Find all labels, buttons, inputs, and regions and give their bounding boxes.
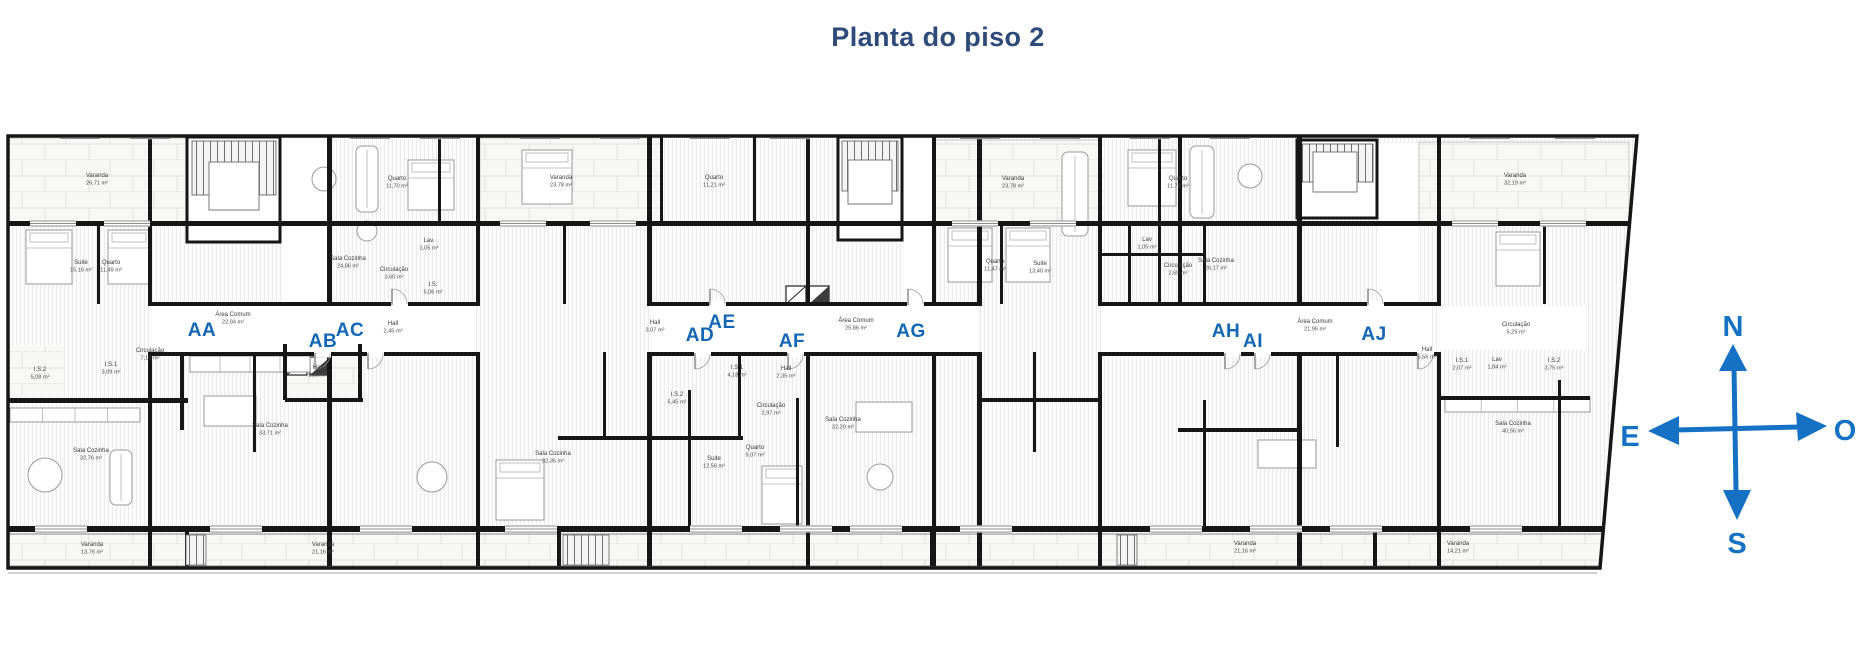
door-gap <box>907 301 924 308</box>
room-label-area: 2,69 m² <box>1169 271 1188 277</box>
room-label-area: 21,16 m² <box>1234 549 1256 555</box>
room-label-name: Área Comum <box>838 317 873 324</box>
wall-segment <box>180 352 184 430</box>
room-label-area: 21,96 m² <box>1304 327 1326 333</box>
compass-south-label: S <box>1727 528 1746 560</box>
compass-ew-axis <box>1676 427 1800 430</box>
wall-segment <box>8 398 188 403</box>
bed <box>1496 232 1540 286</box>
wall-segment <box>1033 352 1036 452</box>
wall-segment <box>806 137 810 306</box>
room-label-area: 21,16 m² <box>312 550 334 556</box>
unit-label-AF[interactable]: AF <box>779 331 805 352</box>
room-label-name: Hall <box>1422 347 1432 353</box>
wall-segment <box>253 352 256 452</box>
wall-segment <box>1098 137 1102 306</box>
room-label-name: Sala Cozinha <box>330 256 366 262</box>
compass-rose: N S E O <box>1620 311 1856 560</box>
wall-segment <box>1437 137 1441 306</box>
room-label-name: Quarto <box>746 445 765 451</box>
wall-segment <box>148 352 152 566</box>
room-label-name: Varanda <box>1002 176 1025 182</box>
wall-segment <box>1437 352 1441 566</box>
room-label-area: 22,94 m² <box>222 320 244 326</box>
compass-east-arrow <box>1648 416 1679 445</box>
room-label-name: I.S.1 <box>1456 358 1469 364</box>
exterior-stair <box>186 535 206 565</box>
wall-segment <box>438 137 441 223</box>
wall-segment <box>1178 137 1182 306</box>
round-table <box>28 458 62 492</box>
door-gap <box>709 301 726 308</box>
room-label-area: 9,07 m² <box>746 453 765 459</box>
room-label-area: 3,60 m² <box>385 275 404 281</box>
room-label-area: 24,86 m² <box>337 264 359 270</box>
room-label-area: 2,45 m² <box>384 329 403 335</box>
wall-segment <box>1158 137 1161 223</box>
room-label-name: Sala Cozinha <box>1495 421 1531 427</box>
room-label-area: 23,78 m² <box>550 183 572 189</box>
door-gap <box>694 351 711 358</box>
wall-segment <box>603 352 606 440</box>
wall-segment <box>806 352 810 566</box>
room-label-area: 11,47 m² <box>984 267 1006 273</box>
room-label-name: Circulação <box>380 267 409 273</box>
room-label-name: Suite <box>707 456 721 462</box>
room-label-area: 12,56 m² <box>703 464 725 470</box>
room-label-area: 2,35 m² <box>309 373 328 379</box>
room-label-area: 5,45 m² <box>668 400 687 406</box>
room-label-name: Varanda <box>86 173 109 179</box>
building-interior <box>8 134 1637 568</box>
room-label-name: Circulação <box>1502 322 1531 328</box>
floor-plan-page: Planta do piso 2 Varanda26,71 m²Suite15,… <box>0 0 1864 661</box>
wall-segment <box>97 224 100 304</box>
exterior-stair <box>563 535 609 565</box>
room-label-area: 2,35 m² <box>777 374 796 380</box>
room-label-name: Varanda <box>312 542 335 548</box>
wall-segment <box>650 302 980 306</box>
round-table <box>312 167 336 191</box>
dining-table <box>1258 440 1316 468</box>
room-label-area: 5,56 m² <box>1418 355 1437 361</box>
room-label-name: Área Comum <box>1297 318 1332 325</box>
room-label-name: Área Comum <box>215 311 250 318</box>
room-label-area: 7,13 m² <box>141 356 160 362</box>
room-label-name: Sala Cozinha <box>825 417 861 423</box>
bed <box>496 460 544 520</box>
room-label-area: 5,29 m² <box>1507 330 1526 336</box>
compass-north-arrow <box>1719 344 1747 371</box>
room-label-area: 32,35 m² <box>542 459 564 465</box>
wall-segment <box>476 352 480 566</box>
unit-label-AC[interactable]: AC <box>336 320 364 341</box>
round-table <box>417 462 447 492</box>
room-label-area: 1,84 m² <box>1488 365 1507 371</box>
wall-segment <box>1297 352 1302 566</box>
wall-segment <box>1336 352 1339 447</box>
wall-segment <box>647 352 652 566</box>
wall-segment <box>563 224 566 304</box>
room-label-area: 1,05 m² <box>420 246 439 252</box>
room-label-area: 26,17 m² <box>1205 266 1227 272</box>
room-label-name: Suite <box>1033 261 1047 267</box>
door-gap <box>391 301 408 308</box>
wall-segment <box>150 302 478 306</box>
wall-segment <box>932 137 936 306</box>
room-label-area: 3,07 m² <box>646 328 665 334</box>
room-label-area: 13,76 m² <box>81 550 103 556</box>
room-label-name: Circulação <box>136 348 165 354</box>
corridor-area <box>1440 306 1585 350</box>
room-label-name: Lav <box>1492 357 1502 363</box>
bed <box>408 160 454 210</box>
room-label-area: 5,06 m² <box>424 290 443 296</box>
unit-label-AH[interactable]: AH <box>1212 321 1240 342</box>
room-label-name: Hall <box>650 320 660 326</box>
room-label-name: Suite <box>74 260 88 266</box>
room-label-area: 23,78 m² <box>1002 184 1024 190</box>
wall-segment <box>1203 400 1206 528</box>
room-label-name: Varanda <box>550 175 573 181</box>
unit-label-AB[interactable]: AB <box>309 331 337 352</box>
room-label-name: I.S.1 <box>731 365 744 371</box>
wall-segment <box>977 352 982 566</box>
stair-landing <box>1313 152 1357 192</box>
door-gap <box>1367 301 1384 308</box>
room-label-area: 11,49 m² <box>100 268 122 274</box>
stair-landing <box>848 160 892 204</box>
room-label-area: 15,16 m² <box>70 268 92 274</box>
room-label-name: I.S.2 <box>671 392 684 398</box>
wall-segment <box>1128 224 1131 304</box>
unit-label-AI[interactable]: AI <box>1243 331 1263 352</box>
wall-segment <box>980 398 1102 402</box>
room-label-area: 14,21 m² <box>1447 549 1469 555</box>
floor-plan-drawing: Planta do piso 2 Varanda26,71 m²Suite15,… <box>0 0 1864 661</box>
room-label-name: Hall <box>313 365 323 371</box>
room-label-name: Quarto <box>986 259 1005 265</box>
wall-segment <box>358 344 362 400</box>
wall-segment <box>932 352 936 566</box>
room-label-name: Sala Cozinha <box>1198 258 1234 264</box>
room-label-name: Quarto <box>388 176 407 182</box>
room-label-area: 2,97 m² <box>762 411 781 417</box>
veranda-divider <box>557 528 561 566</box>
room-label-area: 5,08 m² <box>31 375 50 381</box>
room-label-name: I.S. <box>428 282 437 288</box>
room-label-area: 32,76 m² <box>80 456 102 462</box>
door-gap <box>1224 351 1241 358</box>
room-label-area: 26,71 m² <box>86 181 108 187</box>
compass-west-label: O <box>1834 415 1857 447</box>
room-label-name: Varanda <box>81 542 104 548</box>
wall-segment <box>327 137 332 306</box>
door-gap <box>367 351 384 358</box>
wall-segment <box>283 344 287 400</box>
wall-segment <box>753 137 756 223</box>
wall-segment <box>1101 253 1205 256</box>
round-table <box>867 464 893 490</box>
room-label-name: Hall <box>388 321 398 327</box>
room-label-name: Circulação <box>757 403 786 409</box>
dining-table <box>204 396 256 426</box>
room-label-area: 3,09 m² <box>102 370 121 376</box>
compass-south-arrow <box>1723 490 1751 520</box>
stair-landing <box>209 162 259 210</box>
room-label-area: 1,05 m² <box>1138 245 1157 251</box>
wall-segment <box>1098 352 1102 566</box>
room-label-area: 11,70 m² <box>1167 184 1189 190</box>
room-label-area: 11,70 m² <box>386 184 408 190</box>
room-label-area: 3,75 m² <box>1545 366 1564 372</box>
page-title: Planta do piso 2 <box>831 22 1044 52</box>
room-label-area: 25,86 m² <box>845 326 867 332</box>
room-label-name: Varanda <box>1504 173 1527 179</box>
bed <box>948 228 992 282</box>
wall-segment <box>1203 224 1206 304</box>
unit-label-AG[interactable]: AG <box>896 321 926 342</box>
room-label-name: Quarto <box>1169 176 1188 182</box>
room-label-name: Hall <box>781 366 791 372</box>
wall-segment <box>9 221 1629 226</box>
room-label-name: I.S.1 <box>105 362 118 368</box>
wall-segment <box>1558 380 1561 528</box>
round-table <box>1238 164 1262 188</box>
bed <box>26 230 72 284</box>
compass-east-label: E <box>1620 421 1639 453</box>
room-label-name: Sala Cozinha <box>252 423 288 429</box>
unit-label-AE[interactable]: AE <box>708 312 735 333</box>
room-label-name: Lav. <box>424 238 435 244</box>
wall-segment <box>1543 224 1546 304</box>
room-label-area: 13,40 m² <box>1029 269 1051 275</box>
wall-segment <box>1178 428 1302 432</box>
room-label-area: 4,18 m² <box>728 373 747 379</box>
veranda-divider <box>1373 528 1377 566</box>
room-label-name: Varanda <box>1447 541 1470 547</box>
room-label-name: Circulação <box>1164 263 1193 269</box>
wall-segment <box>796 398 799 528</box>
dining-table <box>856 402 912 432</box>
wall-segment <box>1297 137 1302 306</box>
room-label-name: Varanda <box>1234 541 1257 547</box>
wall-segment <box>327 352 332 566</box>
wall-segment <box>1100 302 1440 306</box>
wall-segment <box>285 398 363 402</box>
compass-north-label: N <box>1723 311 1744 343</box>
wall-segment <box>660 137 663 223</box>
room-label-name: Sala Cozinha <box>535 451 571 457</box>
compass-west-arrow <box>1796 412 1827 441</box>
room-label-name: Lav <box>1142 237 1152 243</box>
room-label-area: 40,56 m² <box>1502 429 1524 435</box>
wall-segment <box>688 390 691 528</box>
exterior-stair <box>1117 535 1137 565</box>
wall-segment <box>647 137 652 306</box>
wall-segment <box>1158 224 1161 304</box>
room-label-area: 2,07 m² <box>1453 366 1472 372</box>
room-label-name: Quarto <box>102 260 121 266</box>
room-label-area: 11,21 m² <box>703 183 725 189</box>
room-label-name: I.S.2 <box>1548 358 1561 364</box>
bed <box>108 230 150 284</box>
room-label-area: 32,20 m² <box>832 425 854 431</box>
unit-label-AJ[interactable]: AJ <box>1361 324 1386 345</box>
wall-segment <box>476 137 480 306</box>
wall-segment <box>1440 396 1590 400</box>
room-label-area: 32,19 m² <box>1504 181 1526 187</box>
room-label-name: Sala Cozinha <box>73 448 109 454</box>
room-label-area: 33,71 m² <box>259 431 281 437</box>
room-label-name: Quarto <box>705 175 724 181</box>
room-label-name: I.S.2 <box>34 367 47 373</box>
unit-label-AA[interactable]: AA <box>188 320 216 341</box>
